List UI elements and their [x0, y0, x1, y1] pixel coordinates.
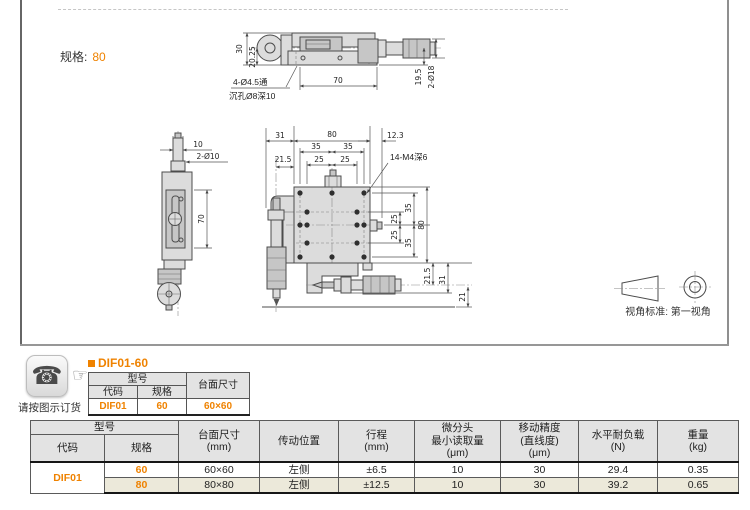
cell-stroke: ±12.5: [339, 478, 415, 494]
dim-21-bottom: 21: [458, 292, 467, 302]
cell-weight: 0.65: [658, 478, 739, 494]
header-line: (kg): [658, 441, 738, 453]
dim-25-right: 25: [340, 155, 350, 164]
part-number-title: DIF01-60: [88, 356, 250, 370]
dim-25-upper-right: 25: [390, 214, 399, 224]
dim-35-right: 35: [343, 142, 353, 151]
dim-70-top: 70: [333, 76, 343, 85]
header-accuracy: 移动精度(直线度)(μm): [501, 421, 579, 463]
header-drive-position: 传动位置: [260, 421, 339, 463]
phone-icon: ☎: [26, 355, 68, 397]
header-spec: 规格: [105, 435, 179, 463]
header-line: 重量: [658, 429, 738, 441]
dim-25-left: 25: [314, 155, 324, 164]
cell-position: 左侧: [260, 462, 339, 478]
mini-table-row: DIF01 60 60×60: [89, 399, 250, 416]
spec-table-block: 型号 台面尺寸(mm) 传动位置 行程(mm) 微分头最小读取量(μm) 移动精…: [30, 420, 739, 494]
header-line: 微分头: [415, 422, 500, 434]
dim-2-d18: 2-Ø18: [427, 65, 436, 88]
hole-note-2: 沉孔Ø8深10: [229, 91, 276, 101]
mini-cell-code: DIF01: [89, 399, 138, 416]
header-line: 移动精度: [501, 422, 578, 434]
header-stroke: 行程(mm): [339, 421, 415, 463]
mini-header-size: 台面尺寸: [187, 373, 250, 399]
view-standard-caption: 视角标准: 第一视角: [625, 305, 711, 318]
drawing-plan-view: 31 80 12.3 35 35 25 25 21.5 14-M4深6: [262, 126, 472, 312]
dim-35-upper-right: 35: [404, 203, 413, 213]
header-line: 台面尺寸: [179, 429, 259, 441]
cell-spec: 60: [105, 462, 179, 478]
header-code: 代码: [31, 435, 105, 463]
dim-25-lower-right: 25: [390, 230, 399, 240]
part-number-title-text: DIF01-60: [98, 356, 148, 370]
cell-min-reading: 10: [415, 478, 501, 494]
pointing-finger-icon: ☞: [72, 365, 88, 386]
orange-bullet-icon: [88, 360, 95, 367]
dim-21-5-top: 21.5: [275, 155, 292, 164]
mini-header-code: 代码: [89, 386, 138, 399]
spec-table: 型号 台面尺寸(mm) 传动位置 行程(mm) 微分头最小读取量(μm) 移动精…: [30, 420, 739, 494]
header-line: (μm): [501, 447, 578, 459]
phone-glyph: ☎: [31, 361, 62, 391]
cell-min-reading: 10: [415, 462, 501, 478]
drawing-side-view: 30 20.25 4-Ø4.5通 沉孔Ø8深10 70 19.5 2-Ø18: [229, 33, 445, 101]
mini-header-spec: 规格: [138, 386, 187, 399]
header-line: 水平耐负载: [579, 429, 657, 441]
dim-31: 31: [275, 131, 285, 140]
header-line: (mm): [179, 441, 259, 453]
drawing-left-view: 10 2-Ø10 70: [157, 131, 228, 316]
part-number-table: 型号 台面尺寸 代码 规格 DIF01 60 60×60: [88, 372, 250, 416]
mini-cell-spec: 60: [138, 399, 187, 416]
dim-19-5: 19.5: [414, 68, 423, 85]
header-line: (直线度): [501, 435, 578, 447]
dim-10: 10: [193, 140, 203, 149]
table-row: DIF01 60 60×60 左侧 ±6.5 10 30 29.4 0.35: [31, 462, 739, 478]
cell-stroke: ±6.5: [339, 462, 415, 478]
header-line: 最小读取量: [415, 435, 500, 447]
dim-20-25: 20.25: [248, 46, 257, 68]
dim-31-bottom: 31: [438, 275, 447, 285]
header-line: (μm): [415, 447, 500, 459]
dim-80-top: 80: [327, 130, 337, 139]
dim-21-5-bottom: 21.5: [423, 267, 432, 284]
table-row: 80 80×80 左侧 ±12.5 10 30 39.2 0.65: [31, 478, 739, 494]
part-number-block: DIF01-60 型号 台面尺寸 代码 规格 DIF01 60 60×60: [88, 356, 250, 416]
cell-code: DIF01: [31, 462, 105, 493]
cell-spec: 80: [105, 478, 179, 494]
dim-70-left: 70: [197, 214, 206, 224]
cell-size: 60×60: [179, 462, 260, 478]
header-line: 行程: [339, 429, 414, 441]
header-weight: 重量(kg): [658, 421, 739, 463]
header-model: 型号: [31, 421, 179, 435]
mini-cell-size: 60×60: [187, 399, 250, 416]
dim-80-right: 80: [417, 220, 426, 230]
first-angle-projection-symbol: 视角标准: 第一视角: [614, 271, 711, 318]
cell-position: 左侧: [260, 478, 339, 494]
dim-12-3: 12.3: [387, 131, 404, 140]
header-size: 台面尺寸(mm): [179, 421, 260, 463]
dim-35-left: 35: [311, 142, 321, 151]
cell-weight: 0.35: [658, 462, 739, 478]
tap-note: 14-M4深6: [390, 152, 428, 162]
cell-load: 39.2: [579, 478, 658, 494]
mini-header-model: 型号: [89, 373, 187, 386]
header-load: 水平耐负载(N): [579, 421, 658, 463]
dim-30: 30: [235, 44, 244, 54]
dim-35-lower-right: 35: [404, 238, 413, 248]
catalog-page: 规格:80: [0, 0, 750, 510]
technical-drawing: 30 20.25 4-Ø4.5通 沉孔Ø8深10 70 19.5 2-Ø18: [0, 0, 750, 345]
header-min-reading: 微分头最小读取量(μm): [415, 421, 501, 463]
cell-load: 29.4: [579, 462, 658, 478]
header-line: (mm): [339, 441, 414, 453]
cell-size: 80×80: [179, 478, 260, 494]
dim-2-d10: 2-Ø10: [197, 152, 220, 161]
header-line: (N): [579, 441, 657, 453]
cell-accuracy: 30: [501, 462, 579, 478]
cell-accuracy: 30: [501, 478, 579, 494]
hole-note-1: 4-Ø4.5通: [233, 77, 268, 87]
